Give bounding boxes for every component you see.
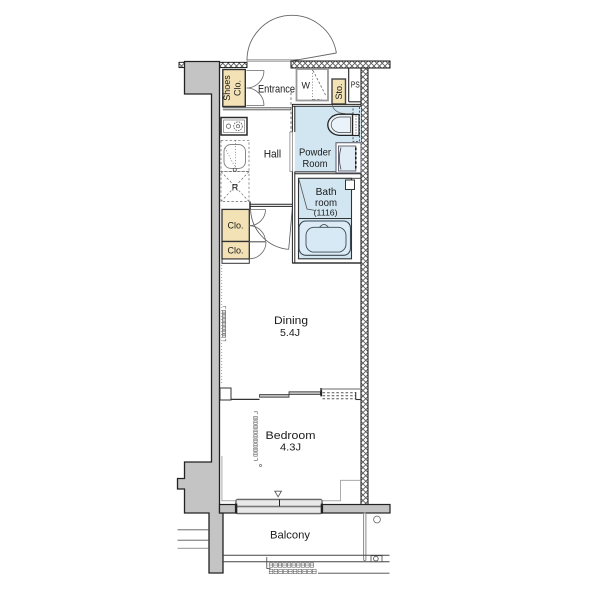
svg-text:Powder: Powder (299, 146, 331, 158)
svg-text:Clo.: Clo. (227, 246, 243, 256)
svg-text:4.3J: 4.3J (280, 442, 301, 453)
svg-text:Hall: Hall (264, 149, 282, 161)
svg-text:Shoes: Shoes (222, 75, 232, 101)
svg-text:PS: PS (351, 81, 360, 90)
svg-text:Entrance: Entrance (258, 83, 295, 95)
svg-text:Bedroom: Bedroom (266, 430, 316, 442)
svg-text:Clo.: Clo. (227, 220, 243, 230)
svg-text:Balcony: Balcony (270, 529, 311, 541)
svg-text:5.4J: 5.4J (280, 328, 300, 339)
svg-text:(1116): (1116) (314, 208, 338, 218)
svg-text:Clo.: Clo. (233, 80, 243, 96)
svg-text:R: R (232, 183, 239, 193)
svg-text:Dining: Dining (274, 315, 308, 327)
svg-text:Sto.: Sto. (334, 83, 344, 99)
svg-text:Room: Room (303, 158, 328, 170)
svg-text:Bath: Bath (316, 187, 337, 198)
svg-text:W: W (302, 80, 311, 90)
